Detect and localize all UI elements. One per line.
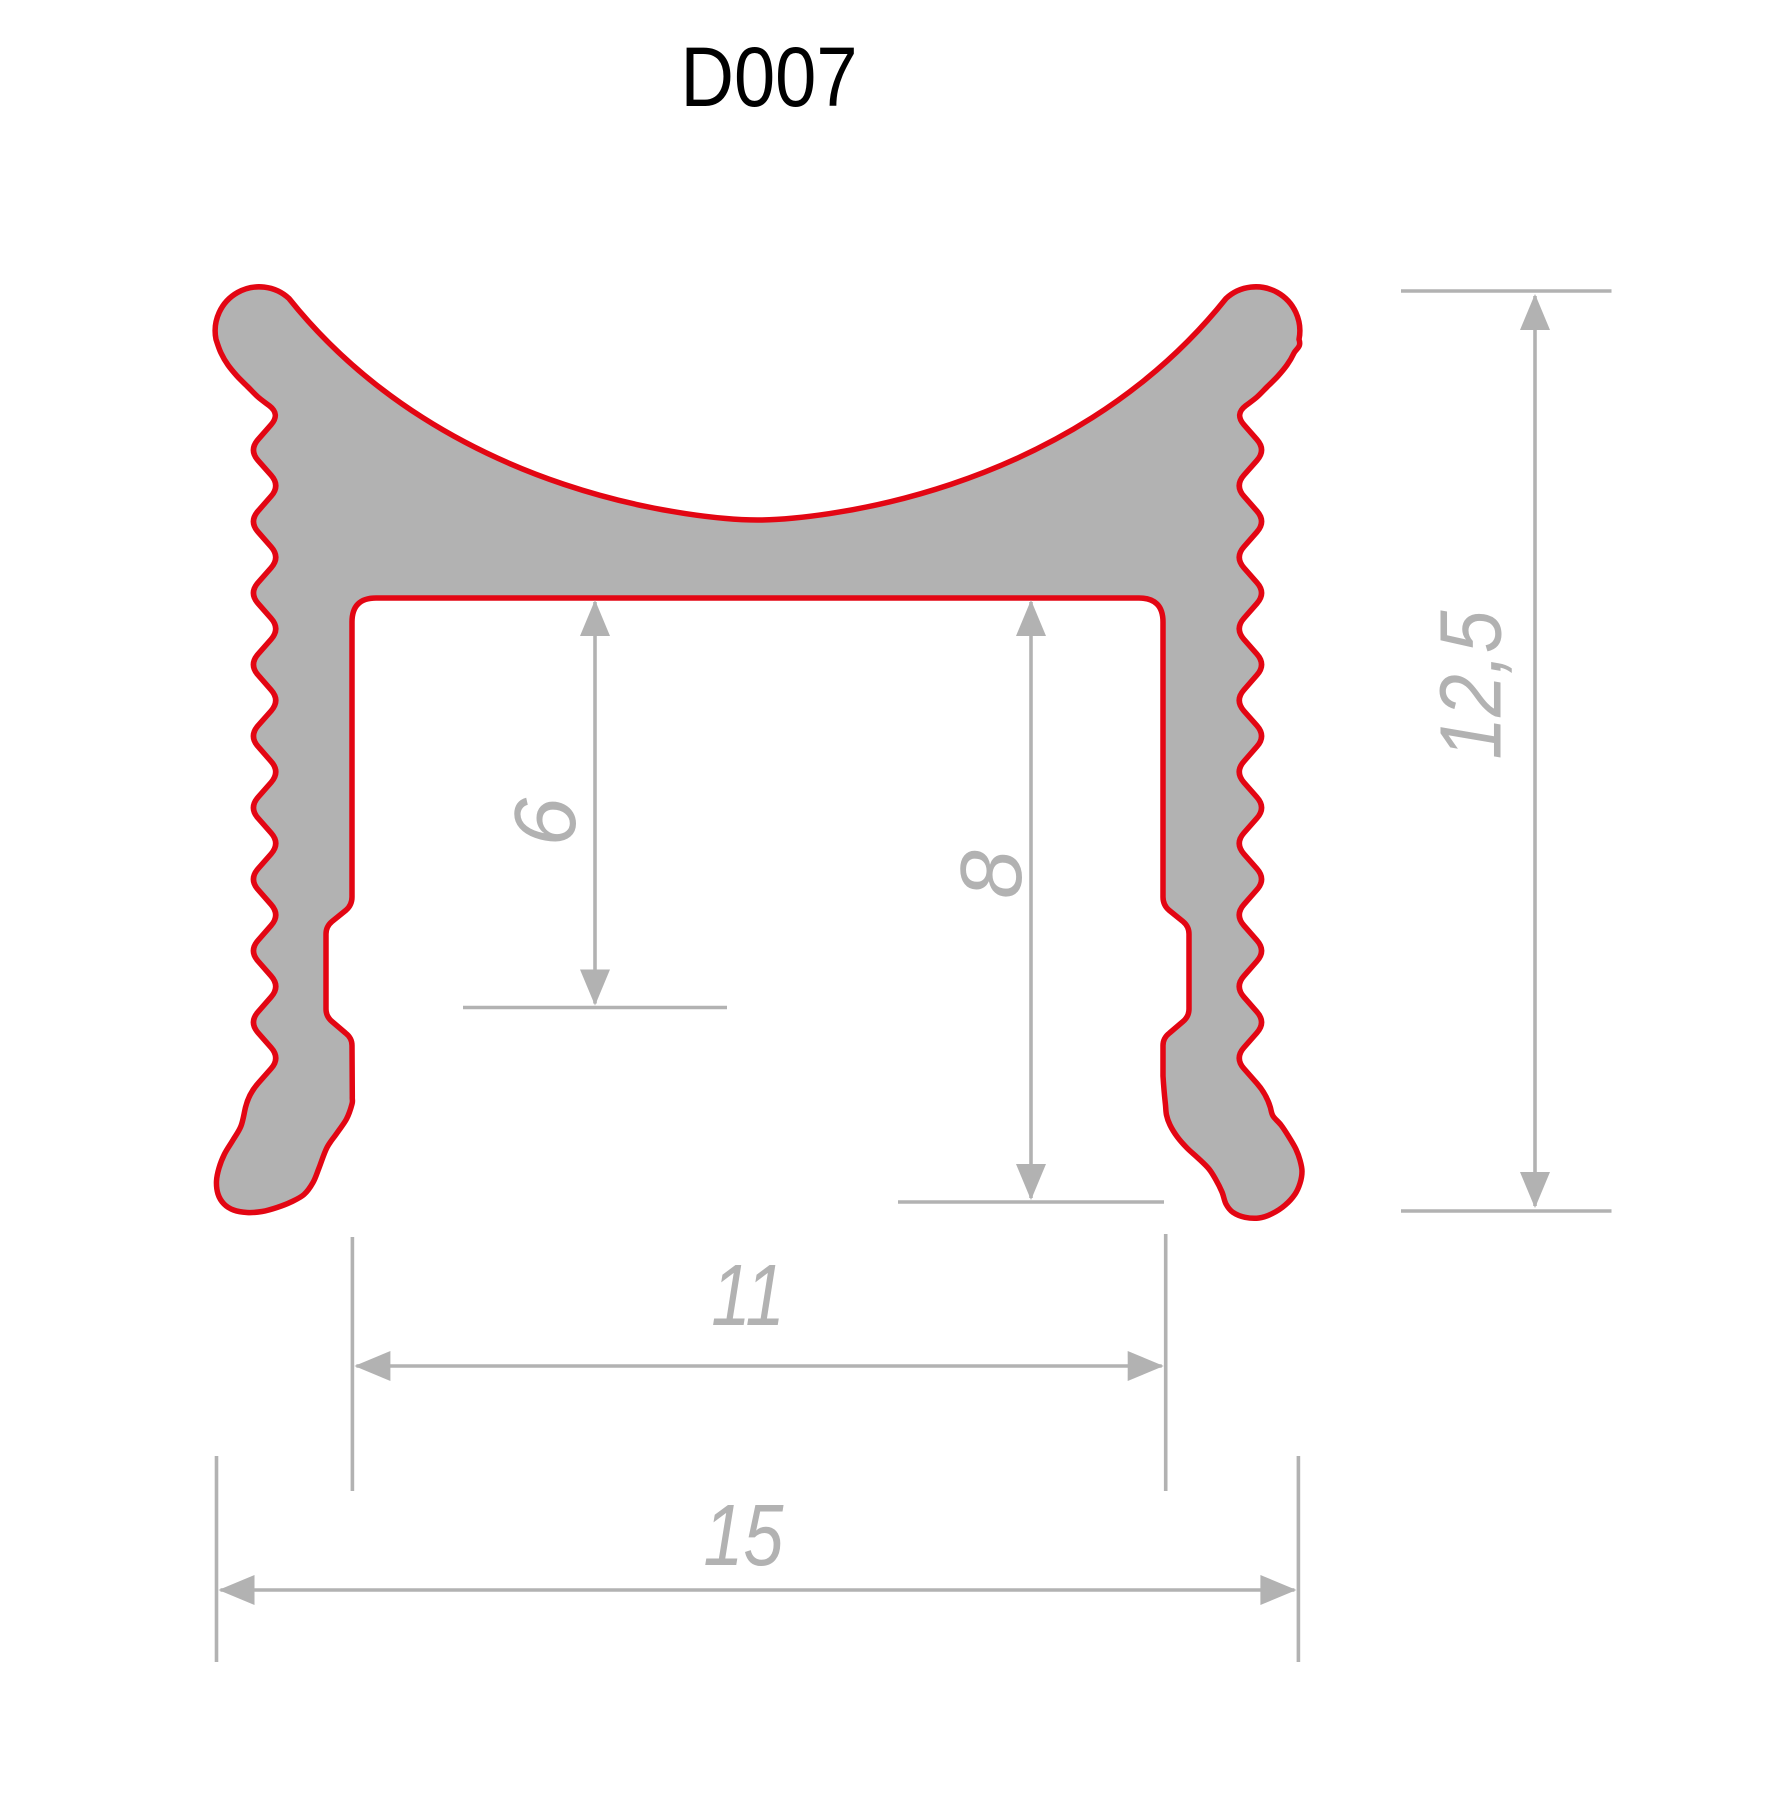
- svg-text:11: 11: [711, 1246, 785, 1344]
- svg-text:D007: D007: [681, 30, 858, 124]
- svg-text:8: 8: [942, 850, 1040, 899]
- svg-text:12,5: 12,5: [1422, 610, 1520, 759]
- svg-text:6: 6: [496, 797, 594, 846]
- svg-text:15: 15: [703, 1486, 783, 1584]
